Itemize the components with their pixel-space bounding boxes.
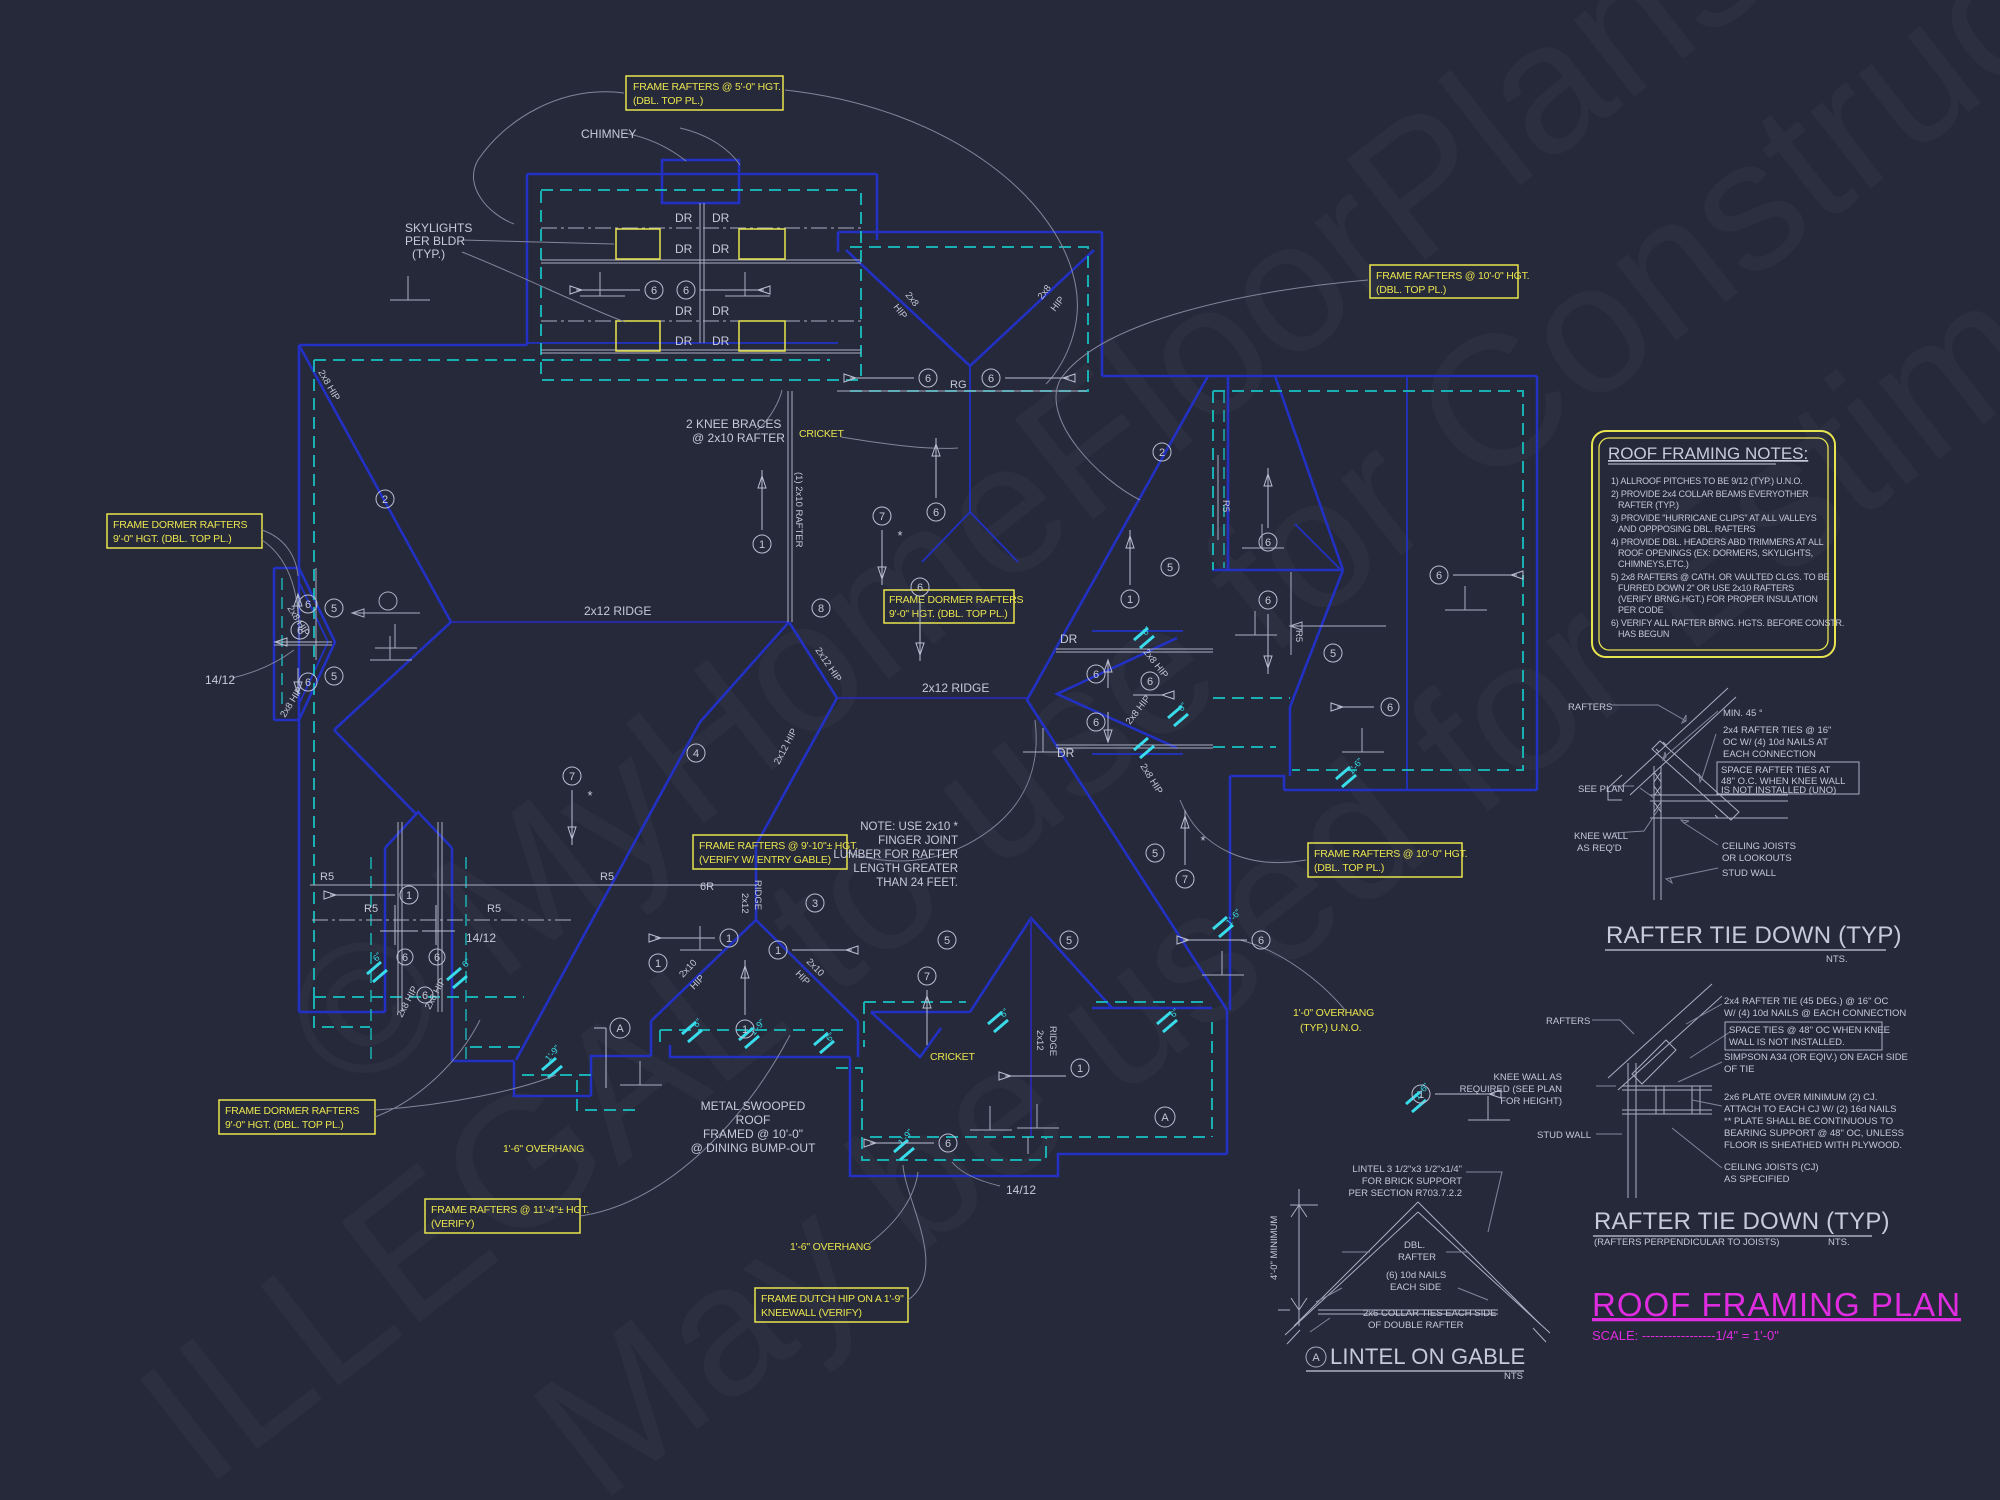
svg-text:2x6 COLLAR TIES EACH SIDE: 2x6 COLLAR TIES EACH SIDE [1363,1308,1496,1319]
svg-text:(DBL. TOP PL.): (DBL. TOP PL.) [1314,862,1384,874]
svg-text:(VERIFY): (VERIFY) [431,1218,474,1230]
svg-text:DR: DR [712,304,730,318]
svg-text:SPACE TIES @ 48" OC WHEN KNEE: SPACE TIES @ 48" OC WHEN KNEE [1729,1025,1890,1036]
svg-text:8: 8 [818,603,824,615]
svg-text:@ 2x10 RAFTER: @ 2x10 RAFTER [692,431,785,445]
svg-text:1: 1 [1127,594,1133,606]
svg-text:FURRED DOWN 2" OR USE 2x10 RAF: FURRED DOWN 2" OR USE 2x10 RAFTERS [1618,583,1794,593]
svg-text:RG: RG [950,379,967,391]
svg-text:1'-0" OVERHANG: 1'-0" OVERHANG [1293,1007,1374,1019]
svg-text:6: 6 [1258,935,1264,947]
svg-text:6: 6 [1265,595,1271,607]
svg-text:STUD WALL: STUD WALL [1537,1130,1591,1141]
svg-text:7: 7 [569,771,575,783]
svg-text:5: 5 [331,603,337,615]
svg-text:*: * [1200,833,1205,848]
svg-text:5: 5 [944,935,950,947]
svg-text:DR: DR [675,304,693,318]
svg-text:RIDGE: RIDGE [1047,1026,1058,1056]
svg-text:RAFTERS: RAFTERS [1546,1016,1590,1027]
svg-text:RAFTER (TYP.): RAFTER (TYP.) [1618,500,1679,510]
svg-text:ROOF: ROOF [736,1113,771,1127]
svg-text:W/ (4) 10d NAILS @ EACH CONNEC: W/ (4) 10d NAILS @ EACH CONNECTION [1724,1008,1906,1019]
svg-text:THAN 24 FEET.: THAN 24 FEET. [876,877,958,889]
svg-text:AS REQ'D: AS REQ'D [1577,843,1622,854]
svg-text:6: 6 [683,285,689,297]
svg-text:DR: DR [675,211,693,225]
svg-text:R5: R5 [600,871,614,883]
svg-text:FRAME RAFTERS @ 10'-0" HGT.: FRAME RAFTERS @ 10'-0" HGT. [1376,270,1529,282]
svg-text:R5: R5 [320,871,334,883]
svg-text:RAFTER: RAFTER [1398,1252,1436,1263]
svg-text:CHIMNEY: CHIMNEY [581,127,636,141]
svg-text:DR: DR [675,242,693,256]
svg-text:6: 6 [651,285,657,297]
svg-text:2: 2 [1159,447,1165,459]
svg-text:6: 6 [1093,717,1099,729]
svg-text:7: 7 [879,511,885,523]
svg-text:1: 1 [726,933,732,945]
svg-text:3) PROVIDE "HURRICANE CLIPS" A: 3) PROVIDE "HURRICANE CLIPS" AT ALL VALL… [1611,513,1817,523]
svg-text:RAFTER TIE DOWN (TYP): RAFTER TIE DOWN (TYP) [1606,922,1902,949]
svg-text:LENGTH GREATER: LENGTH GREATER [853,863,958,875]
svg-text:1'-6" OVERHANG: 1'-6" OVERHANG [503,1143,584,1155]
svg-text:6: 6 [917,582,923,594]
svg-text:4: 4 [693,748,699,760]
svg-text:6: 6 [297,625,303,637]
svg-text:A: A [1161,1112,1169,1124]
svg-text:** PLATE SHALL BE CONTINUOUS T: ** PLATE SHALL BE CONTINUOUS TO [1724,1116,1893,1127]
svg-text:CRICKET: CRICKET [930,1051,975,1063]
svg-text:6) VERIFY ALL RAFTER BRNG. HGT: 6) VERIFY ALL RAFTER BRNG. HGTS. BEFORE … [1611,618,1844,628]
svg-text:WALL IS NOT INSTALLED.: WALL IS NOT INSTALLED. [1729,1037,1845,1048]
svg-text:2x12: 2x12 [739,893,750,914]
svg-text:(6) 10d NAILS: (6) 10d NAILS [1386,1270,1446,1281]
svg-text:DR: DR [712,242,730,256]
svg-text:FRAME RAFTERS @ 10'-0" HGT.: FRAME RAFTERS @ 10'-0" HGT. [1314,848,1467,860]
svg-text:2x12: 2x12 [1034,1030,1045,1051]
svg-text:OF TIE: OF TIE [1724,1064,1754,1075]
svg-text:1: 1 [406,890,412,902]
svg-text:PER SECTION R703.7.2.2: PER SECTION R703.7.2.2 [1348,1188,1462,1199]
svg-text:2) PROVIDE 2x4 COLLAR BEAMS EV: 2) PROVIDE 2x4 COLLAR BEAMS EVERYOTHER [1611,489,1809,499]
svg-text:A: A [616,1023,624,1035]
svg-text:AND OPPPOSING DBL. RAFTERS: AND OPPPOSING DBL. RAFTERS [1618,524,1756,534]
svg-text:CHIMNEYS,ETC.): CHIMNEYS,ETC.) [1618,559,1689,569]
svg-text:FINGER JOINT: FINGER JOINT [878,835,958,847]
svg-text:FRAME RAFTERS @ 11'-4"± HGT.: FRAME RAFTERS @ 11'-4"± HGT. [431,1204,589,1216]
svg-text:6: 6 [434,952,440,964]
svg-text:1: 1 [1077,1063,1083,1075]
svg-text:METAL SWOOPED: METAL SWOOPED [701,1099,806,1113]
svg-text:LINTEL 3 1/2"x3 1/2"x1/4": LINTEL 3 1/2"x3 1/2"x1/4" [1352,1164,1462,1175]
svg-text:PER CODE: PER CODE [1618,605,1664,615]
svg-text:2x4 RAFTER TIES @ 16": 2x4 RAFTER TIES @ 16" [1723,725,1831,736]
svg-text:1: 1 [759,539,765,551]
svg-text:FRAME DORMER RAFTERS: FRAME DORMER RAFTERS [889,594,1023,606]
svg-text:CRICKET: CRICKET [799,428,844,440]
svg-text:ROOF FRAMING PLAN: ROOF FRAMING PLAN [1592,1286,1961,1323]
svg-text:9'-0" HGT. (DBL. TOP PL.): 9'-0" HGT. (DBL. TOP PL.) [889,608,1008,620]
svg-text:(RAFTERS PERPENDICULAR TO JOIS: (RAFTERS PERPENDICULAR TO JOISTS) [1594,1237,1779,1248]
svg-text:AS SPECIFIED: AS SPECIFIED [1724,1174,1790,1185]
svg-text:2x12 RIDGE: 2x12 RIDGE [584,604,651,618]
svg-text:NOTE: USE 2x10 *: NOTE: USE 2x10 * [860,821,958,833]
svg-text:(1) 2x10 RAFTER: (1) 2x10 RAFTER [793,472,804,548]
svg-text:SCALE: -----------------1/4" =: SCALE: -----------------1/4" = 1'-0" [1592,1328,1779,1343]
svg-text:SEE PLAN: SEE PLAN [1578,784,1625,795]
svg-text:LUMBER FOR RAFTER: LUMBER FOR RAFTER [833,849,958,861]
svg-text:BEARING SUPPORT @ 48" OC, UNLE: BEARING SUPPORT @ 48" OC, UNLESS [1724,1128,1904,1139]
svg-text:NTS: NTS [1504,1371,1523,1382]
svg-text:A: A [1312,1352,1320,1364]
svg-text:6: 6 [1093,669,1099,681]
svg-text:REQUIRED (SEE PLAN: REQUIRED (SEE PLAN [1460,1084,1563,1095]
svg-text:14/12: 14/12 [1006,1183,1036,1197]
svg-text:RIDGE: RIDGE [752,880,763,910]
svg-text:SKYLIGHTS: SKYLIGHTS [405,221,472,235]
svg-text:(TYP.) U.N.O.: (TYP.) U.N.O. [1300,1022,1361,1034]
svg-text:DR: DR [675,334,693,348]
svg-text:DR: DR [1060,632,1078,646]
svg-text:FRAME DORMER RAFTERS: FRAME DORMER RAFTERS [113,519,247,531]
svg-text:6: 6 [305,599,311,611]
svg-text:5: 5 [1152,848,1158,860]
svg-text:*: * [587,788,592,803]
svg-text:FRAME DORMER RAFTERS: FRAME DORMER RAFTERS [225,1105,359,1117]
svg-text:6: 6 [925,373,931,385]
svg-text:14/12: 14/12 [466,931,496,945]
svg-text:5: 5 [1330,648,1336,660]
svg-text:OR LOOKOUTS: OR LOOKOUTS [1722,853,1792,864]
svg-text:*: * [897,528,902,543]
svg-text:1: 1 [742,1024,748,1036]
svg-text:DBL.: DBL. [1404,1240,1425,1251]
svg-text:KNEE WALL: KNEE WALL [1574,831,1628,842]
svg-text:(DBL. TOP PL.): (DBL. TOP PL.) [633,95,703,107]
svg-text:R5: R5 [1293,630,1304,642]
svg-text:7: 7 [924,971,930,983]
svg-text:FLOOR IS SHEATHED WITH PLYWOOD: FLOOR IS SHEATHED WITH PLYWOOD. [1724,1140,1902,1151]
svg-text:2x12 RIDGE: 2x12 RIDGE [922,681,989,695]
svg-text:CEILING JOISTS: CEILING JOISTS [1722,841,1796,852]
svg-text:DR: DR [712,334,730,348]
svg-text:5: 5 [1066,935,1072,947]
svg-text:6: 6 [1387,702,1393,714]
svg-text:6: 6 [1147,676,1153,688]
svg-text:6: 6 [305,677,311,689]
svg-text:SIMPSON A34 (OR EQIV.) ON EACH: SIMPSON A34 (OR EQIV.) ON EACH SIDE [1724,1052,1908,1063]
svg-text:1: 1 [655,958,661,970]
svg-text:6: 6 [1436,570,1442,582]
svg-text:KNEE WALL AS: KNEE WALL AS [1494,1072,1562,1083]
svg-text:IS NOT INSTALLED (UNO): IS NOT INSTALLED (UNO) [1721,785,1836,796]
svg-text:MIN. 45 °: MIN. 45 ° [1723,708,1763,719]
svg-text:OF DOUBLE RAFTER: OF DOUBLE RAFTER [1368,1320,1464,1331]
svg-text:9'-0" HGT. (DBL. TOP PL.): 9'-0" HGT. (DBL. TOP PL.) [225,1119,344,1131]
svg-text:FOR HEIGHT): FOR HEIGHT) [1500,1096,1562,1107]
svg-text:R5: R5 [364,903,378,915]
svg-text:OC W/ (4) 10d NAILS AT: OC W/ (4) 10d NAILS AT [1723,737,1828,748]
svg-text:2x4 RAFTER TIE (45 DEG.) @ 16": 2x4 RAFTER TIE (45 DEG.) @ 16" OC [1724,996,1888,1007]
svg-text:FRAME RAFTERS @ 5'-0" HGT.: FRAME RAFTERS @ 5'-0" HGT. [633,81,781,93]
svg-text:FRAME DUTCH HIP ON A 1'-9": FRAME DUTCH HIP ON A 1'-9" [761,1293,904,1305]
svg-text:STUD WALL: STUD WALL [1722,868,1776,879]
svg-text:6: 6 [422,990,428,1002]
svg-text:5: 5 [331,671,337,683]
svg-text:6: 6 [1265,537,1271,549]
svg-text:1) ALLROOF PITCHES TO BE 9/12: 1) ALLROOF PITCHES TO BE 9/12 (TYP.) U.N… [1611,476,1802,486]
svg-text:@ DINING BUMP-OUT: @ DINING BUMP-OUT [691,1141,817,1155]
svg-text:DR: DR [1057,746,1075,760]
svg-text:EACH SIDE: EACH SIDE [1390,1282,1441,1293]
svg-text:6R: 6R [700,881,714,893]
svg-text:ATTACH TO EACH CJ W/ (2) 16d N: ATTACH TO EACH CJ W/ (2) 16d NAILS [1724,1104,1896,1115]
svg-text:KNEEWALL (VERIFY): KNEEWALL (VERIFY) [761,1307,862,1319]
svg-text:RAFTERS: RAFTERS [1568,702,1612,713]
svg-text:5) 2x8 RAFTERS @ CATH. OR VAUL: 5) 2x8 RAFTERS @ CATH. OR VAULTED CLGS. … [1611,572,1830,582]
svg-text:EACH CONNECTION: EACH CONNECTION [1723,749,1816,760]
svg-text:(VERIFY BRNG.HGT.) FOR PROPER: (VERIFY BRNG.HGT.) FOR PROPER INSULATION [1618,594,1818,604]
svg-text:7: 7 [1182,874,1188,886]
svg-text:R5: R5 [487,903,501,915]
svg-text:(VERIFY W/ ENTRY GABLE): (VERIFY W/ ENTRY GABLE) [699,854,831,866]
svg-text:(DBL. TOP PL.): (DBL. TOP PL.) [1376,284,1446,296]
svg-text:3: 3 [812,898,818,910]
svg-text:1: 1 [775,945,781,957]
svg-text:4'-0" MINIMUM: 4'-0" MINIMUM [1269,1216,1280,1280]
svg-text:FRAMED @ 10'-0": FRAMED @ 10'-0" [703,1127,803,1141]
svg-text:4) PROVIDE DBL. HEADERS ABD TR: 4) PROVIDE DBL. HEADERS ABD TRIMMERS AT … [1611,537,1824,547]
svg-text:(TYP.): (TYP.) [412,247,445,261]
svg-text:DR: DR [712,211,730,225]
svg-text:6: 6 [945,1138,951,1150]
svg-text:NTS.: NTS. [1826,954,1848,965]
svg-text:LINTEL ON GABLE: LINTEL ON GABLE [1330,1344,1525,1369]
svg-text:1'-6" OVERHANG: 1'-6" OVERHANG [790,1241,871,1253]
svg-text:CEILING JOISTS (CJ): CEILING JOISTS (CJ) [1724,1162,1818,1173]
svg-text:PER BLDR: PER BLDR [405,234,465,248]
svg-text:R5: R5 [1220,500,1231,512]
svg-text:9'-0" HGT. (DBL. TOP PL.): 9'-0" HGT. (DBL. TOP PL.) [113,533,232,545]
svg-text:2 KNEE BRACES: 2 KNEE BRACES [686,417,781,431]
svg-text:6: 6 [933,507,939,519]
svg-text:14/12: 14/12 [205,673,235,687]
svg-text:2x6 PLATE OVER MINIMUM (2) CJ.: 2x6 PLATE OVER MINIMUM (2) CJ. [1724,1092,1877,1103]
svg-text:2: 2 [382,494,388,506]
svg-text:RAFTER TIE DOWN (TYP): RAFTER TIE DOWN (TYP) [1594,1208,1890,1235]
svg-text:ROOF OPENINGS (EX: DORMERS, SK: ROOF OPENINGS (EX: DORMERS, SKYLIGHTS, [1618,548,1813,558]
svg-text:FOR BRICK SUPPORT: FOR BRICK SUPPORT [1362,1176,1462,1187]
svg-text:HAS BEGUN: HAS BEGUN [1618,629,1669,639]
svg-text:6: 6 [402,952,408,964]
svg-text:5: 5 [1167,562,1173,574]
svg-text:ROOF FRAMING NOTES:: ROOF FRAMING NOTES: [1608,444,1808,463]
svg-text:6: 6 [988,373,994,385]
svg-text:SPACE RAFTER TIES AT: SPACE RAFTER TIES AT [1721,765,1830,776]
svg-text:NTS.: NTS. [1828,1237,1850,1248]
